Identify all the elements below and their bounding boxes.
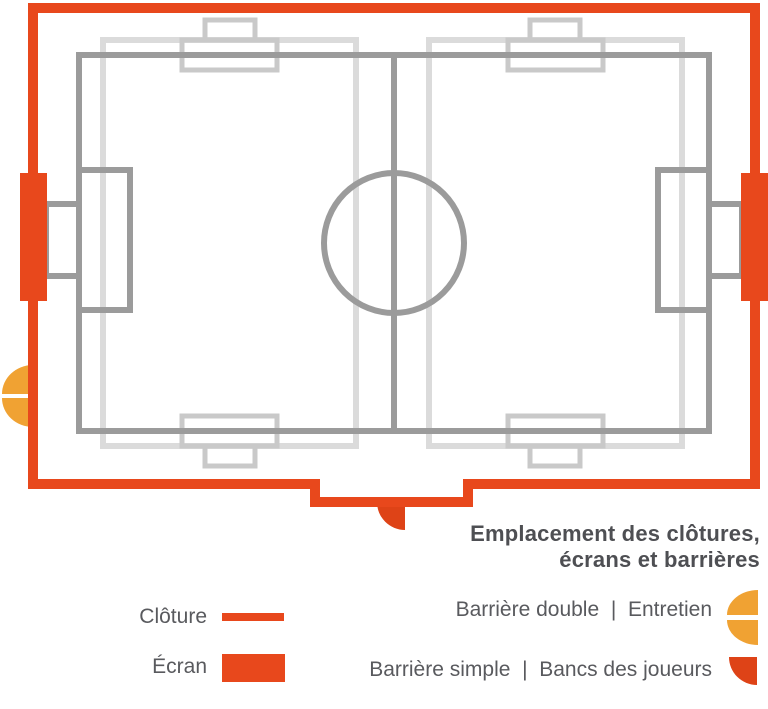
- barriere-double-icon-top-quadrant: [727, 590, 758, 615]
- goal-right: [709, 204, 742, 276]
- cloture-line-swatch: [222, 613, 284, 621]
- ecran-rect-swatch: [222, 654, 285, 682]
- legend-label-barriere-simple: Barrière simple | Bancs des joueurs: [369, 657, 712, 682]
- screen-left: [20, 173, 47, 301]
- legend-label-barriere-double: Barrière double | Entretien: [456, 597, 712, 622]
- page-title-line2: écrans et barrières: [470, 547, 760, 573]
- legend-label-cloture: Clôture: [139, 604, 207, 629]
- barriere-double-icon-bottom-quadrant: [727, 620, 758, 645]
- page-title: Emplacement des clôtures, écrans et barr…: [470, 521, 760, 573]
- barriere-double-icon: [727, 590, 758, 645]
- main-pitch: [46, 55, 742, 431]
- cross-pitch-left-outline: [103, 40, 356, 446]
- page-title-line1: Emplacement des clôtures,: [470, 521, 760, 547]
- legend-label-ecran: Écran: [152, 654, 207, 679]
- screen-right: [741, 173, 768, 301]
- goal-left: [46, 204, 79, 276]
- diagram-canvas: Emplacement des clôtures, écrans et barr…: [0, 0, 768, 709]
